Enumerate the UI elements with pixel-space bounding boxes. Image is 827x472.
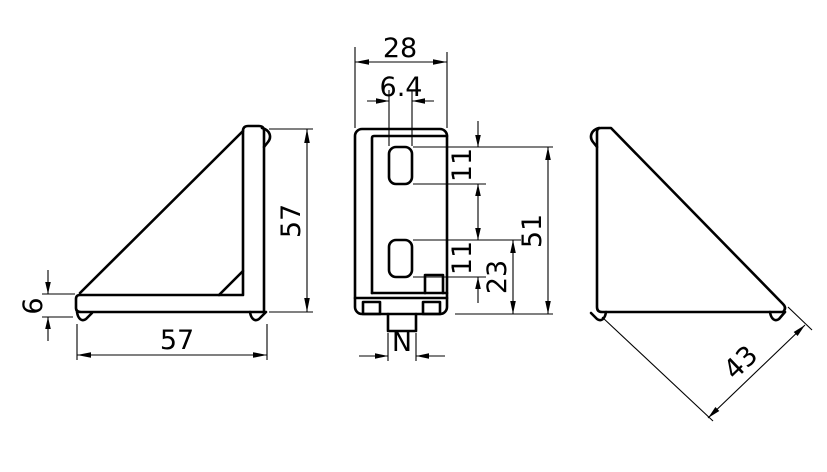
slot-upper (389, 147, 412, 184)
arrowhead (45, 317, 51, 329)
bracket-hypotenuse (80, 131, 243, 293)
arrowhead (304, 129, 310, 143)
arrowhead (475, 135, 481, 147)
arrowhead (304, 298, 310, 312)
dim-label-slot2-to-base: 23 (482, 260, 513, 294)
slot-lower (389, 240, 412, 277)
bracket-triangle-outline (597, 128, 785, 312)
view-front: 28 6.4 11 (355, 33, 553, 361)
arrowhead (416, 353, 429, 359)
arrowhead (77, 352, 91, 358)
dim-label-front-width: 28 (383, 33, 417, 64)
dimension-diagonal: 43 (602, 307, 812, 421)
extension-line (788, 307, 812, 330)
technical-drawing-canvas: 6 57 57 (0, 0, 827, 472)
dimension-front-height: 51 (517, 147, 551, 314)
view-right-side: 43 (591, 128, 812, 421)
dim-label-slot1-height: 11 (447, 148, 478, 182)
dimension-width-bottom: 57 (77, 324, 267, 360)
arrowhead (375, 353, 388, 359)
arrowhead (545, 301, 551, 314)
arrowhead (433, 59, 447, 65)
arrowhead (545, 147, 551, 160)
view-left-side: 6 57 57 (18, 126, 313, 360)
dim-label-diagonal: 43 (718, 340, 764, 386)
arrowhead (475, 228, 481, 240)
dim-label-slot-width: 6.4 (380, 72, 423, 103)
dimension-thickness: 6 (18, 270, 75, 341)
dim-label-thickness: 6 (18, 297, 49, 314)
front-foot-left (363, 302, 380, 314)
bracket-front-outline (355, 129, 447, 314)
arrowhead (45, 282, 51, 294)
arrowhead (253, 352, 267, 358)
dim-label-front-height: 51 (517, 214, 548, 248)
arrowhead (475, 277, 481, 289)
arrowhead (475, 184, 481, 196)
bracket-corner-gusset (219, 271, 243, 295)
dim-label-tab-width: N (392, 327, 412, 358)
arrowhead (510, 301, 516, 314)
dimension-tab-width: N (359, 327, 445, 361)
dim-label-height: 57 (276, 204, 307, 238)
corner-bracket-drawing: 6 57 57 (0, 0, 827, 472)
bracket-l-profile (76, 126, 264, 312)
front-corner-notch (425, 275, 443, 293)
dim-label-width: 57 (160, 325, 194, 356)
dimension-line (708, 325, 805, 418)
dimension-slot2-to-base: 23 (482, 240, 516, 314)
arrowhead (510, 240, 516, 253)
dimension-slot-heights: 11 11 (447, 121, 481, 303)
front-foot-right (423, 302, 440, 314)
front-inner-edge (372, 136, 447, 293)
dim-label-slot2-height: 11 (447, 241, 478, 275)
dimension-height-left-view: 57 (269, 129, 313, 312)
extension-line (602, 317, 713, 421)
arrowhead (355, 59, 369, 65)
